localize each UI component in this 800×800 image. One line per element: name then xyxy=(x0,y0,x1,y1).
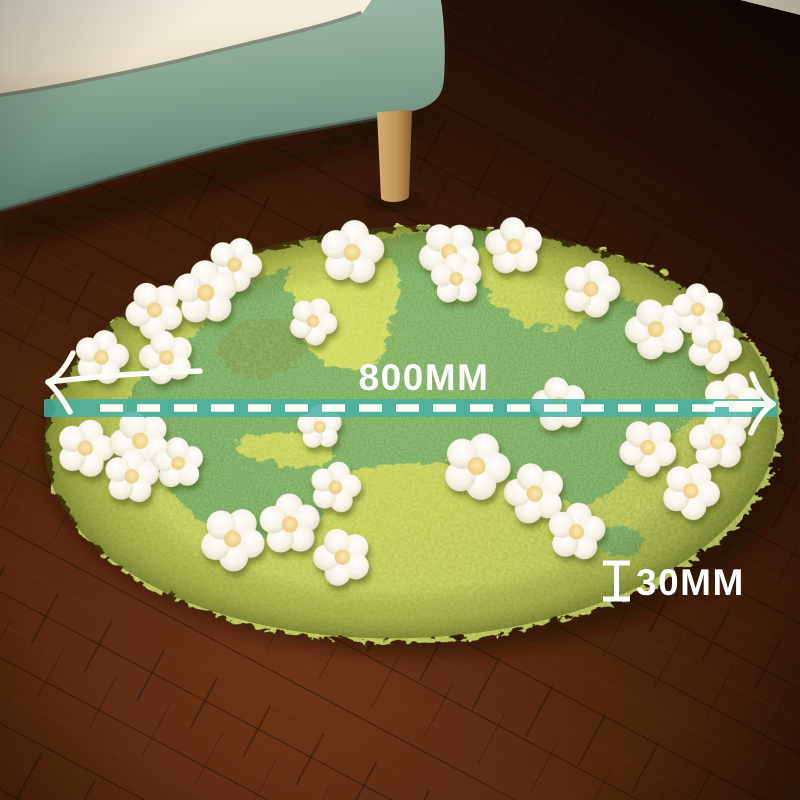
diameter-label: 800MM xyxy=(359,357,490,398)
rug-product-scene: 800MM 30MM xyxy=(0,0,800,800)
thickness-label: 30MM xyxy=(636,562,745,603)
product-photo: 800MM 30MM xyxy=(0,0,800,800)
